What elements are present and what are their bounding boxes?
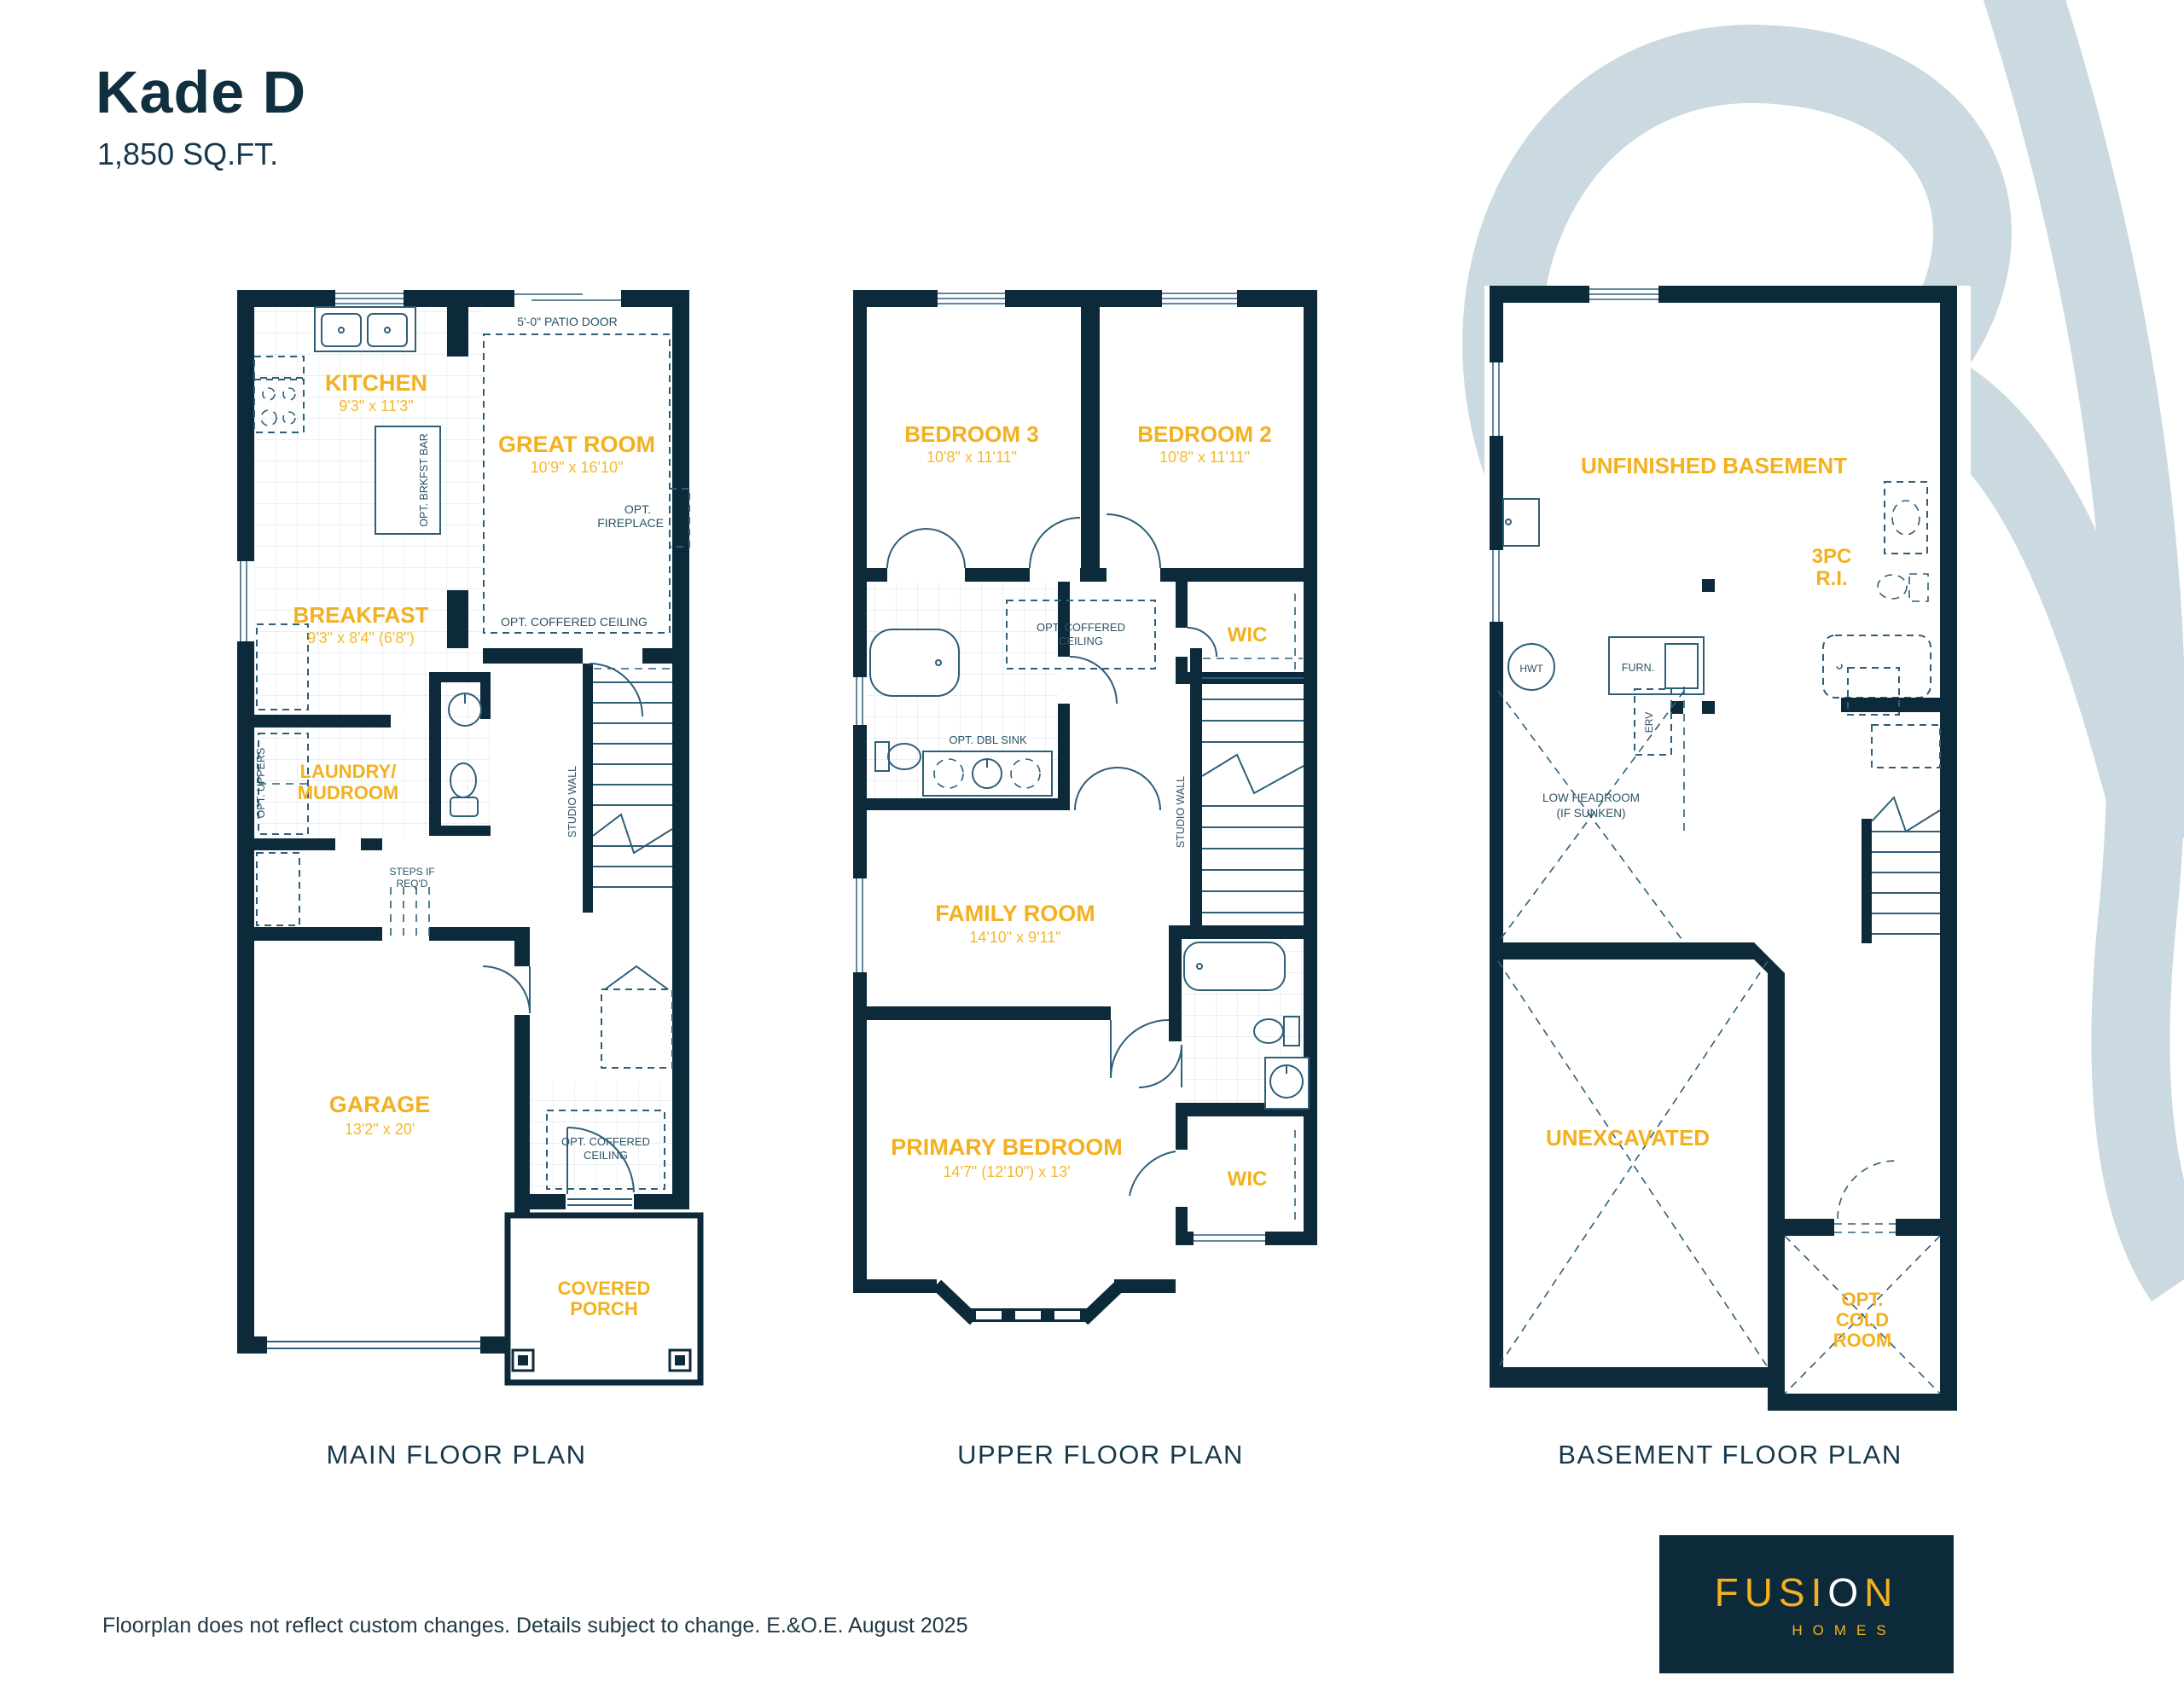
svg-text:UNEXCAVATED: UNEXCAVATED [1546,1125,1710,1151]
svg-text:MUDROOM: MUDROOM [298,782,399,803]
svg-text:3PC: 3PC [1812,545,1852,568]
svg-text:OPT.: OPT. [624,502,651,516]
column [1702,579,1715,592]
svg-text:BREAKFAST: BREAKFAST [293,602,429,628]
upper-floor-plan: BEDROOM 3 10'8" x 11'11" BEDROOM 2 10'8"… [853,290,1331,1366]
svg-text:OPT. COFFERED CEILING: OPT. COFFERED CEILING [501,615,648,629]
svg-text:LOW HEADROOM: LOW HEADROOM [1542,791,1640,804]
svg-text:5'-0" PATIO DOOR: 5'-0" PATIO DOOR [517,315,618,328]
logo-homes-wordmark: HOMES [1792,1622,1896,1639]
svg-text:10'9" x 16'10": 10'9" x 16'10" [531,459,624,476]
main-floor-plan: 5'-0" PATIO DOOR KITCHEN 9'3" x 11'3" GR… [233,290,711,1409]
main-floor-plan-title: MAIN FLOOR PLAN [327,1440,587,1470]
logo-fusion-wordmark: FUSION [1715,1569,1899,1615]
svg-text:BEDROOM 2: BEDROOM 2 [1137,421,1271,447]
column [1702,701,1715,714]
fusion-homes-logo: FUSION HOMES [1659,1535,1954,1673]
svg-text:STUDIO WALL: STUDIO WALL [1175,776,1187,848]
svg-text:OPT. UPPERS: OPT. UPPERS [255,748,267,819]
svg-text:ERV: ERV [1643,712,1655,733]
disclaimer-text: Floorplan does not reflect custom change… [102,1614,967,1638]
svg-text:OPT. COFFERED: OPT. COFFERED [1037,621,1125,634]
svg-text:ROOM: ROOM [1833,1330,1891,1351]
svg-text:STEPS IF: STEPS IF [389,866,434,878]
basement-floor-plan: UNFINISHED BASEMENT 3PC R.I. HWT FURN. E… [1484,286,1971,1420]
svg-text:14'7" (12'10") x 13': 14'7" (12'10") x 13' [943,1163,1070,1180]
svg-text:OPT. COFFERED: OPT. COFFERED [561,1135,650,1148]
vanity [923,751,1052,796]
svg-text:9'3" x 8'4" (6'8"): 9'3" x 8'4" (6'8") [307,629,415,646]
svg-text:CEILING: CEILING [1059,635,1103,647]
island-breakfast-bar [375,426,440,534]
svg-text:13'2" x 20': 13'2" x 20' [345,1121,415,1138]
svg-text:FIREPLACE: FIREPLACE [597,516,664,530]
logo-o-ring: O [1827,1570,1864,1615]
main-bath-tub [870,629,959,696]
electrical-panel [1503,499,1539,546]
floorplan-sheet: Kade D 1,850 SQ.FT. [0,0,2184,1687]
svg-text:FURN.: FURN. [1622,662,1654,674]
svg-text:UNFINISHED BASEMENT: UNFINISHED BASEMENT [1581,453,1847,478]
svg-text:HWT: HWT [1519,663,1543,675]
svg-text:OPT. DBL SINK: OPT. DBL SINK [949,733,1027,746]
svg-text:10'8" x 11'11": 10'8" x 11'11" [1159,449,1250,466]
svg-text:WIC: WIC [1228,1168,1268,1191]
svg-text:(IF SUNKEN): (IF SUNKEN) [1557,807,1626,820]
svg-text:FAMILY ROOM: FAMILY ROOM [935,901,1095,926]
svg-text:PORCH: PORCH [570,1298,637,1319]
ensuite-tub [1184,942,1285,990]
svg-text:OPT.: OPT. [1842,1289,1884,1310]
svg-text:GREAT ROOM: GREAT ROOM [498,432,655,457]
basement-floor-plan-title: BASEMENT FLOOR PLAN [1558,1440,1902,1470]
svg-text:BEDROOM 3: BEDROOM 3 [904,421,1038,447]
svg-text:9'3" x 11'3": 9'3" x 11'3" [339,397,413,415]
square-footage: 1,850 SQ.FT. [97,136,278,172]
svg-text:COLD: COLD [1836,1309,1889,1330]
svg-text:10'8" x 11'11": 10'8" x 11'11" [926,449,1017,466]
svg-text:REQ'D: REQ'D [397,878,428,890]
upper-floor-plan-title: UPPER FLOOR PLAN [957,1440,1244,1470]
svg-text:LAUNDRY/: LAUNDRY/ [300,761,397,782]
svg-text:COVERED: COVERED [558,1278,651,1299]
svg-text:R.I.: R.I. [1815,567,1847,590]
svg-text:PRIMARY BEDROOM: PRIMARY BEDROOM [891,1134,1123,1160]
svg-text:WIC: WIC [1228,623,1268,646]
svg-text:GARAGE: GARAGE [329,1092,431,1117]
svg-text:CEILING: CEILING [584,1149,628,1162]
svg-text:14'10" x 9'11": 14'10" x 9'11" [969,929,1060,946]
page-title: Kade D [96,58,306,126]
svg-text:STUDIO WALL: STUDIO WALL [566,766,578,838]
svg-text:OPT. BRKFST BAR: OPT. BRKFST BAR [418,433,430,527]
svg-text:KITCHEN: KITCHEN [325,370,427,396]
